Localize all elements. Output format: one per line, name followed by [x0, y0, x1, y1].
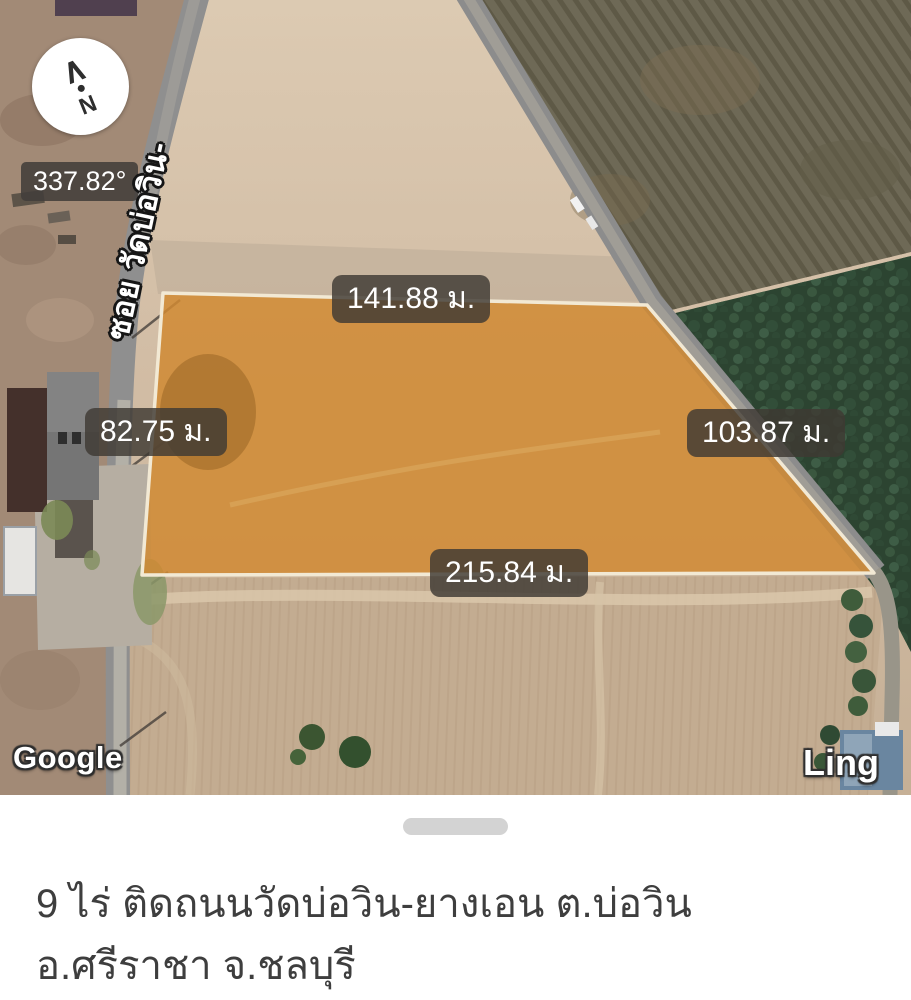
- measurement-label-left: 82.75 ม.: [85, 408, 227, 456]
- measurement-label-top: 141.88 ม.: [332, 275, 490, 323]
- listing-title-line2: อ.ศรีราชา จ.ชลบุรี: [36, 935, 692, 997]
- bottom-field: [118, 576, 882, 795]
- measurement-label-bottom: 215.84 ม.: [430, 549, 588, 597]
- compass-north-label: N: [76, 91, 100, 118]
- bottom-sheet: 9 ไร่ ติดถนนวัดบ่อวิน-ยางเอน ต.บ่อวิน อ.…: [0, 795, 911, 1000]
- ling-watermark: Ling: [803, 742, 879, 784]
- compass-needle: ∧ N: [58, 54, 104, 120]
- north-arrow-icon: ∧: [58, 54, 91, 87]
- compass[interactable]: ∧ N: [32, 38, 129, 135]
- listing-screen: ∧ N 337.82° ซอย วัดบ่อวิน- 141.88 ม. 82.…: [0, 0, 911, 1000]
- satellite-imagery: [0, 0, 911, 795]
- google-watermark: Google: [13, 740, 123, 776]
- measurement-label-right: 103.87 ม.: [687, 409, 845, 457]
- listing-title-line1: 9 ไร่ ติดถนนวัดบ่อวิน-ยางเอน ต.บ่อวิน: [36, 873, 692, 935]
- sheet-drag-handle[interactable]: [403, 818, 508, 835]
- map-view[interactable]: ∧ N 337.82° ซอย วัดบ่อวิน- 141.88 ม. 82.…: [0, 0, 911, 795]
- listing-title: 9 ไร่ ติดถนนวัดบ่อวิน-ยางเอน ต.บ่อวิน อ.…: [36, 873, 692, 997]
